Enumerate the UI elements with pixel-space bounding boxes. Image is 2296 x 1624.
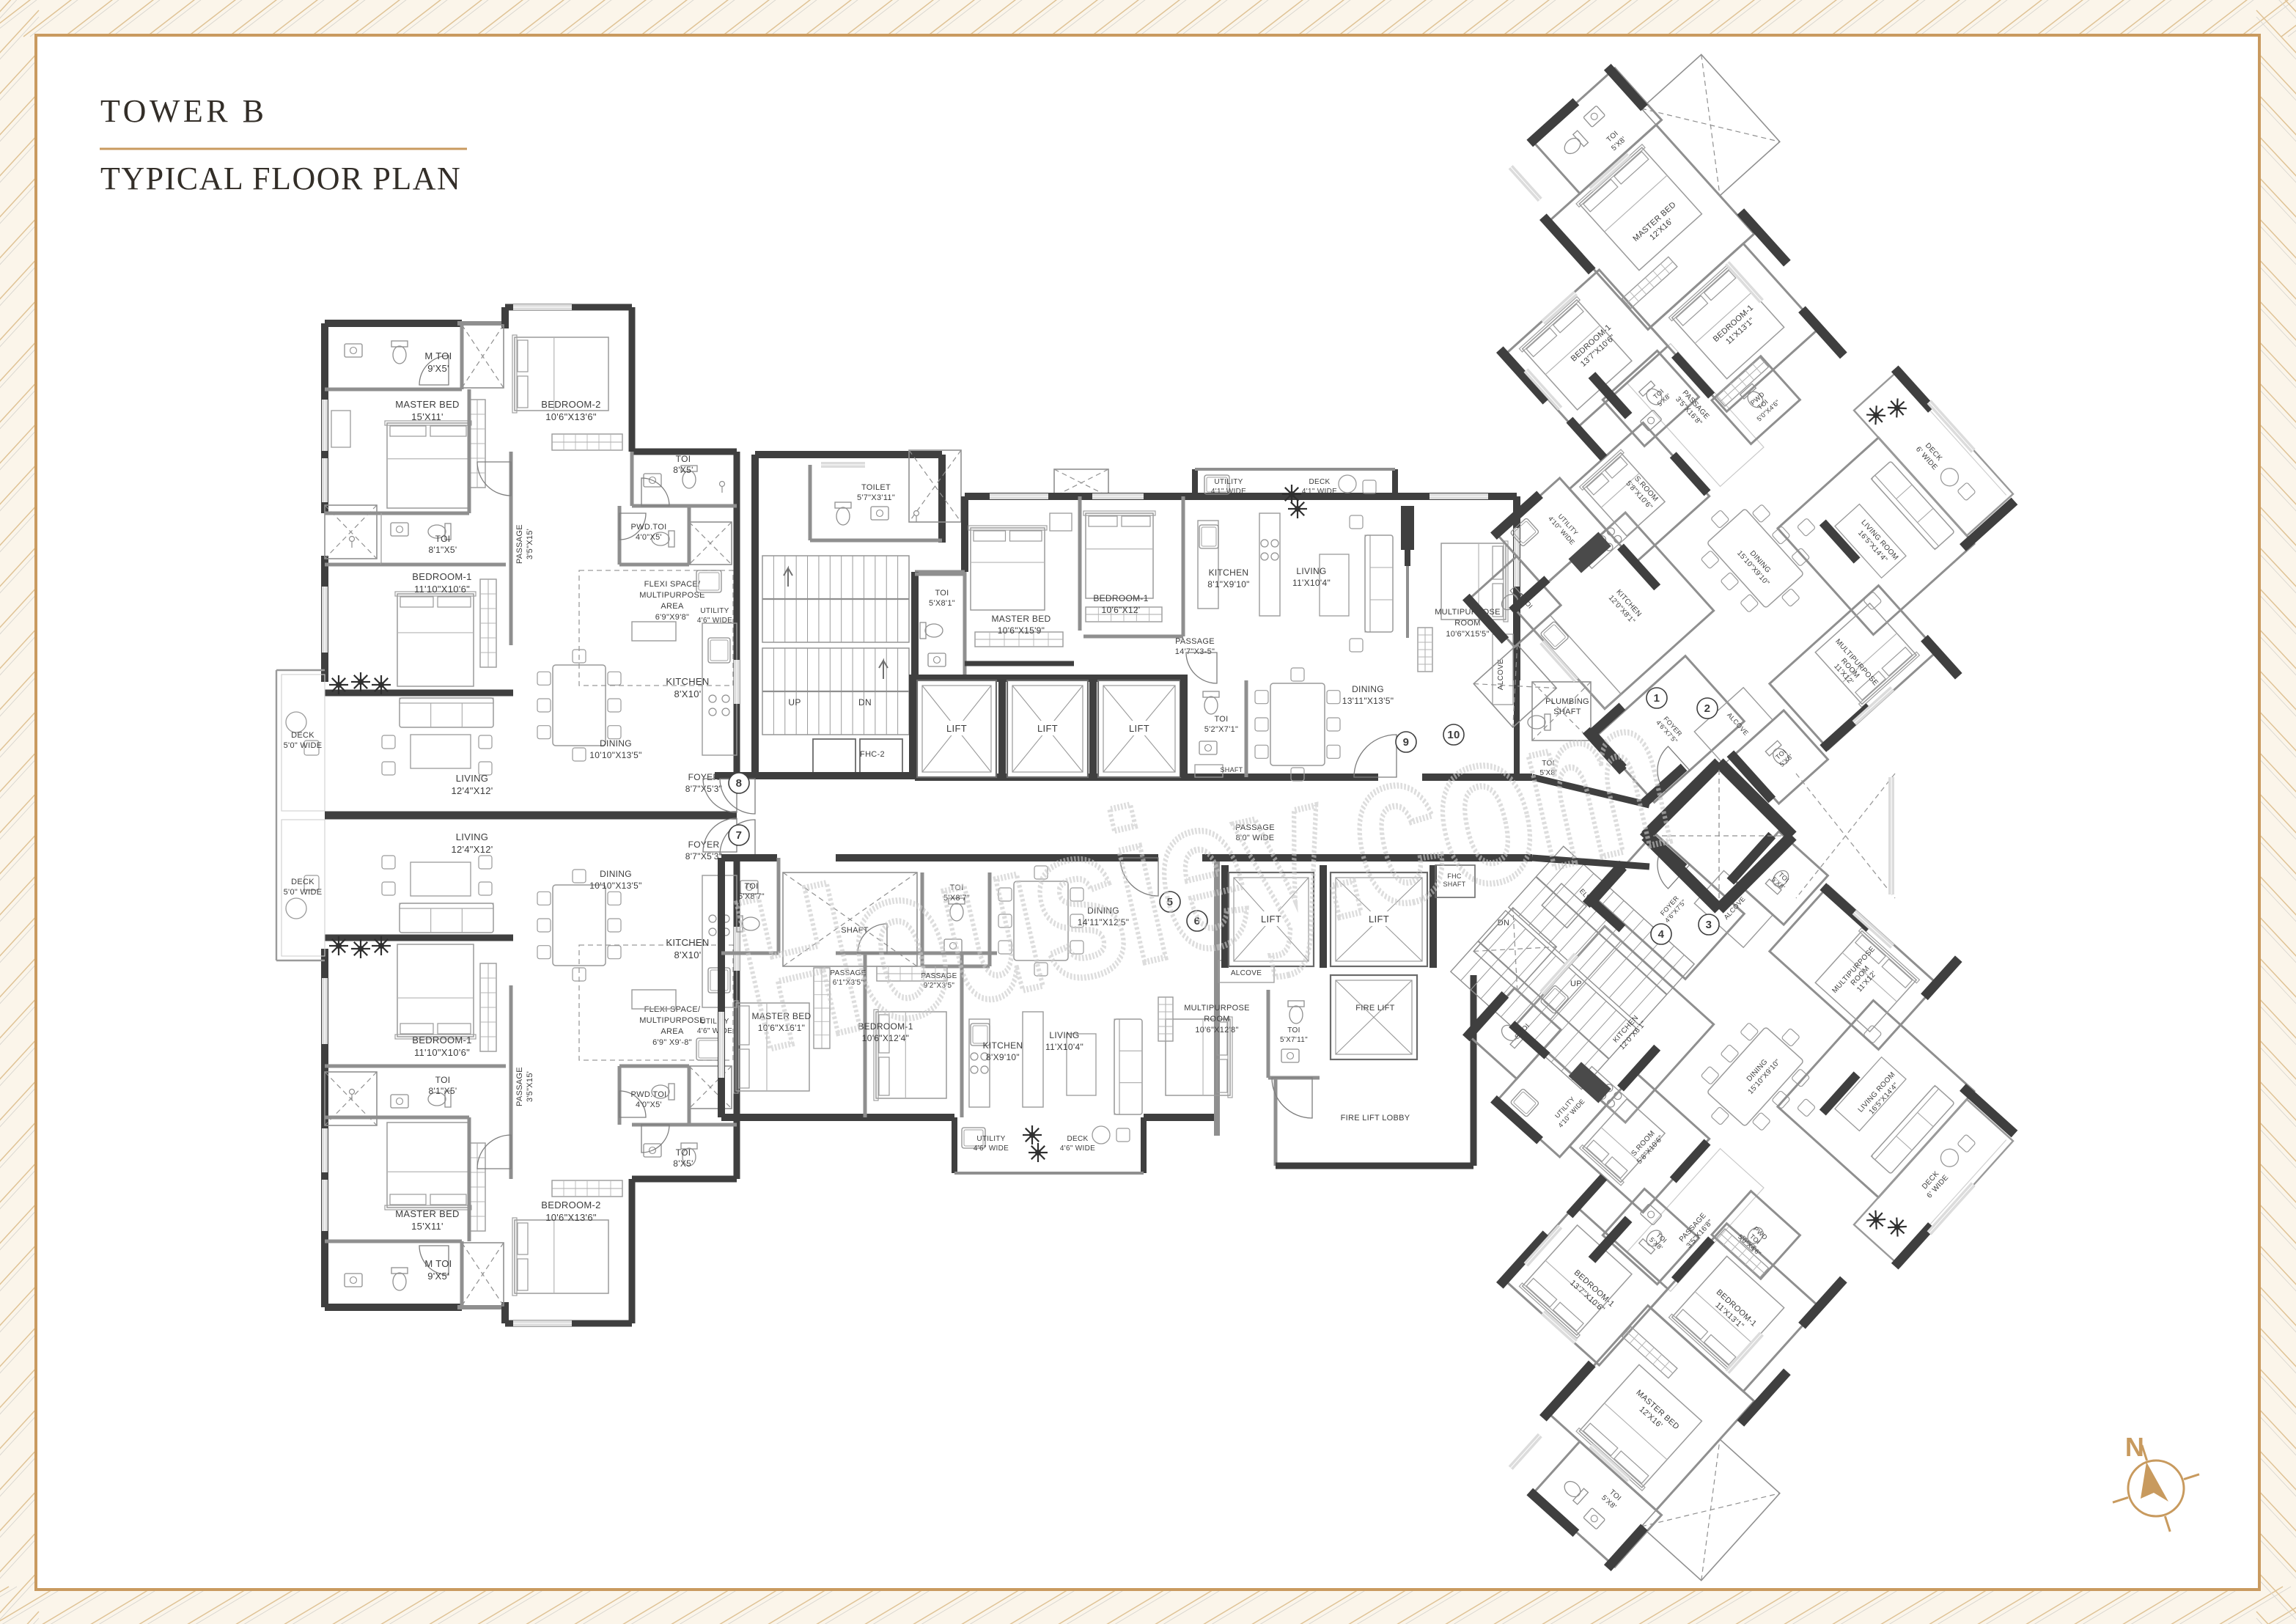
- svg-text:13'11"X13'5": 13'11"X13'5": [1342, 696, 1394, 706]
- svg-text:DECK: DECK: [1309, 478, 1331, 486]
- svg-text:9'X5': 9'X5': [427, 363, 449, 374]
- svg-text:TOILET: TOILET: [861, 483, 891, 492]
- svg-text:PWD.TOI: PWD.TOI: [631, 523, 667, 532]
- svg-text:10'6"X15'9": 10'6"X15'9": [998, 625, 1045, 636]
- svg-text:ROOM: ROOM: [1204, 1015, 1229, 1024]
- svg-text:8'1"X9'10": 8'1"X9'10": [1207, 579, 1249, 589]
- svg-text:TOI: TOI: [435, 534, 451, 544]
- svg-text:11'X10'4": 11'X10'4": [1045, 1042, 1083, 1052]
- svg-text:6'9" X9'-8": 6'9" X9'-8": [652, 1038, 692, 1047]
- svg-text:8: 8: [736, 777, 743, 790]
- svg-text:11'X10'4": 11'X10'4": [1292, 578, 1331, 588]
- svg-text:2: 2: [1704, 702, 1711, 715]
- svg-text:LIVING: LIVING: [1049, 1030, 1079, 1040]
- svg-text:1: 1: [1654, 692, 1660, 705]
- svg-text:8'X10': 8'X10': [674, 949, 701, 960]
- svg-text:9'X5': 9'X5': [427, 1271, 449, 1282]
- svg-text:PWD.TOI: PWD.TOI: [631, 1090, 667, 1099]
- svg-text:DN: DN: [858, 697, 872, 708]
- svg-text:PASSAGE: PASSAGE: [515, 524, 524, 564]
- svg-text:MASTER BED: MASTER BED: [395, 399, 460, 410]
- svg-text:LIVING: LIVING: [456, 831, 488, 842]
- svg-text:N: N: [2125, 1432, 2144, 1462]
- svg-text:MASTER BED: MASTER BED: [395, 1208, 460, 1219]
- svg-text:5'0" WIDE: 5'0" WIDE: [284, 888, 323, 897]
- svg-text:8'X10': 8'X10': [674, 688, 701, 699]
- svg-text:PASSAGE: PASSAGE: [515, 1067, 524, 1106]
- svg-text:15'X11': 15'X11': [411, 411, 444, 422]
- svg-text:11'10"X10'6": 11'10"X10'6": [414, 1047, 470, 1058]
- svg-text:KITCHEN: KITCHEN: [666, 676, 709, 687]
- svg-text:TOWER B: TOWER B: [100, 93, 267, 129]
- svg-text:TYPICAL FLOOR PLAN: TYPICAL FLOOR PLAN: [100, 161, 461, 196]
- svg-text:8'1"X5': 8'1"X5': [429, 545, 457, 555]
- svg-text:8'X9'10": 8'X9'10": [986, 1052, 1020, 1062]
- svg-text:3: 3: [1706, 919, 1712, 931]
- svg-text:LIFT: LIFT: [1129, 723, 1149, 734]
- svg-text:MULTIPURPOSE: MULTIPURPOSE: [639, 591, 705, 600]
- svg-text:BEDROOM-2: BEDROOM-2: [541, 399, 600, 410]
- svg-text:7: 7: [736, 829, 743, 842]
- svg-text:FLEXI SPACE/: FLEXI SPACE/: [644, 1005, 701, 1014]
- svg-text:4'1" WIDE: 4'1" WIDE: [1211, 488, 1246, 496]
- svg-text:LIFT: LIFT: [1037, 723, 1058, 734]
- svg-text:3'5"X15': 3'5"X15': [526, 1071, 534, 1102]
- svg-text:4'6" WIDE: 4'6" WIDE: [974, 1144, 1009, 1153]
- svg-text:4'1" WIDE: 4'1" WIDE: [1302, 488, 1337, 496]
- svg-text:6'9"X9'8": 6'9"X9'8": [655, 613, 690, 622]
- svg-text:AREA: AREA: [661, 1027, 684, 1036]
- svg-text:4'6" WIDE: 4'6" WIDE: [1060, 1144, 1095, 1153]
- svg-text:5'2"X7'1": 5'2"X7'1": [1204, 725, 1239, 734]
- svg-text:DECK: DECK: [291, 731, 314, 740]
- svg-text:TOI: TOI: [676, 454, 691, 464]
- svg-text:BEDROOM-1: BEDROOM-1: [412, 571, 471, 582]
- svg-text:BEDROOM-2: BEDROOM-2: [541, 1199, 600, 1210]
- svg-text:11'10"X10'6": 11'10"X10'6": [414, 584, 470, 595]
- svg-text:10'6"X13'6": 10'6"X13'6": [545, 411, 597, 422]
- svg-text:12'4"X12': 12'4"X12': [451, 844, 493, 855]
- svg-text:DINING: DINING: [600, 869, 632, 879]
- svg-text:FHC-2: FHC-2: [860, 750, 885, 759]
- svg-text:MULTIPURPOSE: MULTIPURPOSE: [1184, 1004, 1250, 1013]
- svg-text:KITCHEN: KITCHEN: [1209, 567, 1249, 578]
- svg-text:4: 4: [1658, 928, 1665, 941]
- svg-text:10'10"X13'5": 10'10"X13'5": [589, 750, 641, 760]
- svg-text:DINING: DINING: [600, 738, 632, 749]
- svg-text:8'1"X5': 8'1"X5': [429, 1086, 457, 1096]
- svg-text:FIRE LIFT: FIRE LIFT: [1355, 1004, 1394, 1013]
- svg-text:TOI: TOI: [1287, 1026, 1300, 1035]
- svg-text:FIRE LIFT LOBBY: FIRE LIFT LOBBY: [1341, 1114, 1410, 1123]
- svg-text:15'X11': 15'X11': [411, 1221, 444, 1232]
- svg-text:TOI: TOI: [1214, 715, 1228, 724]
- svg-text:TOI: TOI: [676, 1147, 691, 1158]
- svg-text:10'6"X12': 10'6"X12': [1102, 605, 1141, 615]
- svg-text:UTILITY: UTILITY: [1214, 478, 1243, 486]
- svg-text:MASTER BED: MASTER BED: [991, 614, 1051, 624]
- svg-text:AREA: AREA: [661, 602, 684, 611]
- svg-text:UP: UP: [788, 697, 801, 708]
- svg-text:DINING: DINING: [1352, 684, 1384, 694]
- svg-text:DECK: DECK: [291, 878, 314, 886]
- svg-text:8'X5': 8'X5': [673, 465, 693, 475]
- svg-text:14'7"X3-5": 14'7"X3-5": [1175, 647, 1215, 656]
- svg-text:5'X8'1": 5'X8'1": [929, 599, 955, 608]
- svg-text:DECK: DECK: [1067, 1135, 1089, 1143]
- svg-text:10'6"X15'5": 10'6"X15'5": [1446, 630, 1489, 639]
- svg-text:MULTIPURPOSE: MULTIPURPOSE: [639, 1016, 705, 1025]
- svg-text:ROOM: ROOM: [1454, 619, 1480, 628]
- svg-text:M TOI: M TOI: [424, 1258, 452, 1269]
- svg-text:UTILITY: UTILITY: [976, 1135, 1005, 1143]
- svg-text:TOI: TOI: [935, 589, 949, 598]
- svg-text:BEDROOM-1: BEDROOM-1: [412, 1035, 471, 1046]
- svg-text:PASSAGE: PASSAGE: [1175, 637, 1215, 646]
- svg-text:BEDROOM-1: BEDROOM-1: [1093, 593, 1148, 603]
- svg-text:5'0" WIDE: 5'0" WIDE: [284, 741, 323, 750]
- svg-text:10'10"X13'5": 10'10"X13'5": [589, 881, 641, 891]
- svg-text:M TOI: M TOI: [424, 350, 452, 361]
- svg-text:4'0"X5': 4'0"X5': [636, 1101, 662, 1109]
- svg-text:4'0"X5': 4'0"X5': [636, 533, 662, 542]
- svg-text:8'X5': 8'X5': [673, 1158, 693, 1169]
- svg-text:4'6" WIDE: 4'6" WIDE: [697, 1027, 732, 1035]
- svg-text:LIVING: LIVING: [1296, 566, 1326, 576]
- svg-text:TOI: TOI: [435, 1075, 451, 1085]
- svg-text:LIVING: LIVING: [456, 773, 488, 784]
- svg-text:12'4"X12': 12'4"X12': [451, 785, 493, 796]
- svg-text:KITCHEN: KITCHEN: [666, 937, 709, 948]
- svg-text:FLEXI SPACE/: FLEXI SPACE/: [644, 580, 701, 589]
- svg-text:MULTIPURPOSE: MULTIPURPOSE: [1435, 608, 1501, 617]
- svg-text:10'6"X12'8": 10'6"X12'8": [1195, 1026, 1238, 1035]
- svg-text:LIFT: LIFT: [946, 723, 967, 734]
- svg-text:5'X7'11": 5'X7'11": [1280, 1036, 1308, 1044]
- svg-text:5'7"X3'11": 5'7"X3'11": [857, 493, 895, 502]
- svg-text:UTILITY: UTILITY: [700, 607, 729, 615]
- svg-text:10'6"X13'6": 10'6"X13'6": [545, 1212, 597, 1223]
- svg-text:3'5"X15': 3'5"X15': [526, 529, 534, 559]
